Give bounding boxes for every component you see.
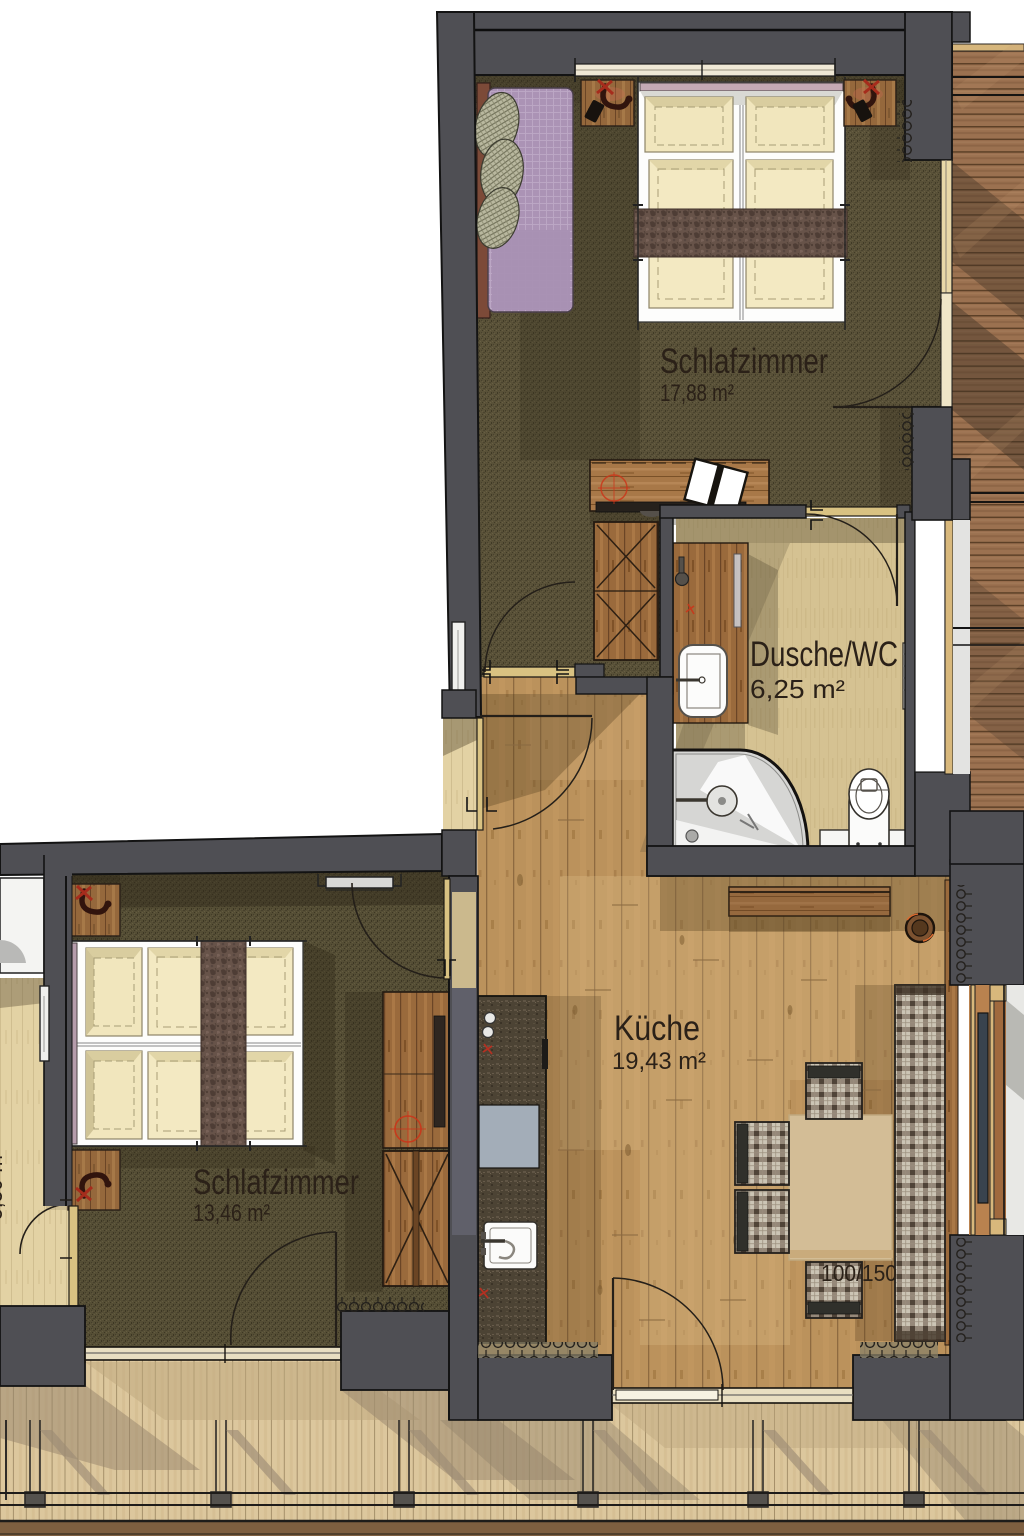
svg-text:13,46 m²: 13,46 m² bbox=[193, 1200, 270, 1227]
svg-text:Dusche/WC: Dusche/WC bbox=[750, 635, 898, 674]
svg-text:5,59 m²: 5,59 m² bbox=[0, 1148, 8, 1220]
svg-text:6,25 m²: 6,25 m² bbox=[750, 674, 845, 704]
svg-text:100/150: 100/150 bbox=[821, 1260, 897, 1286]
svg-text:Schlafzimmer: Schlafzimmer bbox=[660, 342, 828, 381]
svg-text:Küche: Küche bbox=[614, 1009, 700, 1048]
svg-text:19,43 m²: 19,43 m² bbox=[612, 1048, 706, 1075]
svg-text:17,88 m²: 17,88 m² bbox=[660, 380, 734, 407]
svg-text:Schlafzimmer: Schlafzimmer bbox=[193, 1163, 359, 1202]
